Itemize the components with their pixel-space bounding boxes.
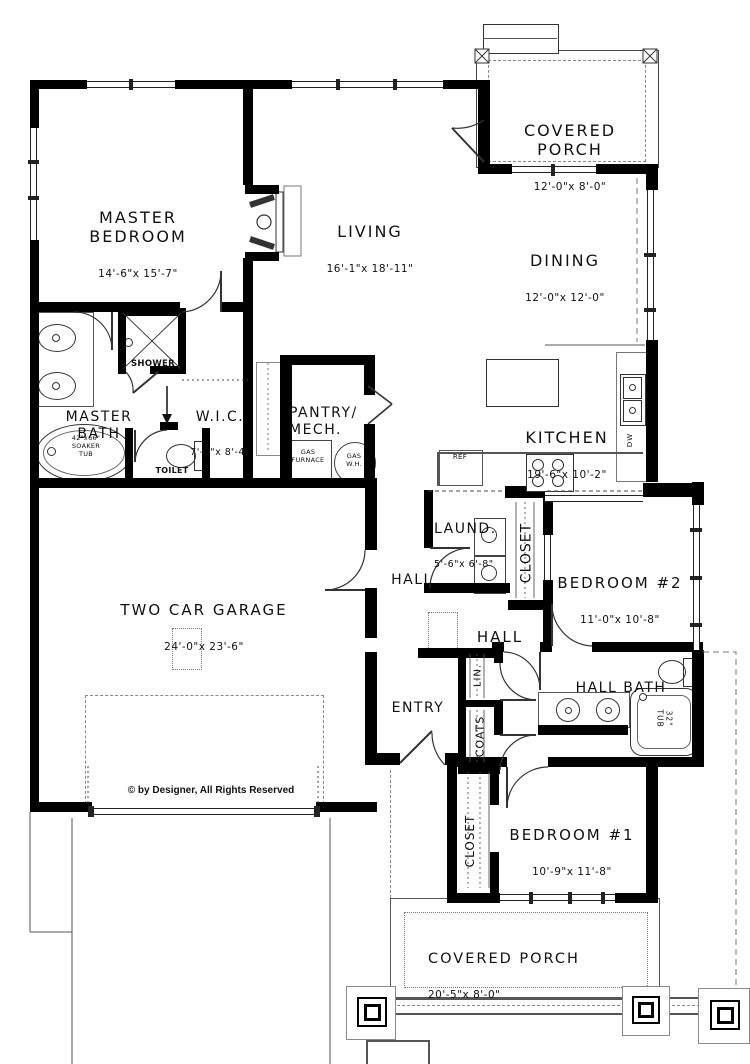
window-mullion — [690, 528, 702, 532]
closet-label-bedroom1: CLOSET — [463, 801, 477, 881]
wall — [418, 648, 460, 658]
ref-label: REF — [441, 453, 479, 461]
porch-column — [364, 1004, 381, 1021]
wall — [646, 340, 658, 482]
porch-step-line — [483, 38, 557, 39]
window — [647, 190, 654, 340]
room-dims: 10'-9"x 11'-8" — [502, 866, 642, 878]
walkway — [366, 1040, 368, 1064]
shower-label: SHOWER — [122, 359, 184, 369]
closet-label-laundry: CLOSET — [519, 506, 535, 601]
attic-access — [428, 612, 458, 650]
wall — [160, 422, 178, 430]
room-dims: 16'-1"x 18'-11" — [305, 263, 435, 275]
room-name: HALL BATH — [556, 680, 686, 697]
wall — [175, 80, 292, 89]
window — [292, 81, 443, 88]
wall — [30, 240, 39, 482]
gas-furnace-label: GAS FURNACE — [286, 448, 330, 465]
room-name: HALL — [458, 629, 542, 647]
wall — [548, 757, 702, 767]
wall — [316, 802, 377, 812]
copyright-text: © by Designer, All Rights Reserved — [106, 785, 316, 796]
room-dims: 12'-0"x 8'-0" — [500, 181, 640, 193]
room-name: BEDROOM #2 — [550, 575, 690, 593]
wall — [243, 85, 253, 185]
porch-steps — [483, 24, 559, 54]
room-dims: 12'-0"x 12'-0" — [500, 292, 630, 304]
floor-plan: COVERED PORCH 12'-0"x 8'-0" MASTER BEDRO… — [0, 0, 750, 1064]
wall — [447, 893, 500, 903]
window-mullion — [129, 79, 133, 90]
wall — [30, 80, 39, 128]
window-mullion — [644, 308, 656, 312]
dishwasher-label: DW — [626, 428, 634, 452]
wall — [424, 490, 433, 548]
room-dims: 20'-5"x 8'-0" — [428, 989, 608, 1001]
room-label-bedroom1: BEDROOM #1 10'-9"x 11'-8" — [502, 808, 642, 897]
room-dims: 24'-0"x 23'-6" — [104, 641, 304, 653]
room-label-garage: TWO CAR GARAGE 24'-0"x 23'-6" — [104, 583, 304, 672]
porch-column — [717, 1007, 734, 1024]
window-mullion — [336, 79, 340, 90]
room-name: DINING — [500, 252, 630, 271]
walkway — [428, 1040, 430, 1064]
room-label-pantry-mech: PANTRY/ MECH. — [289, 386, 377, 457]
wall — [447, 767, 457, 893]
room-name: COVERED PORCH — [500, 122, 640, 160]
room-name: LAUND. — [434, 521, 514, 538]
gas-wh-label: GAS W.H. — [334, 452, 374, 469]
room-label-living: LIVING 16'-1"x 18'-11" — [305, 204, 435, 294]
room-name: KITCHEN — [502, 429, 632, 448]
room-label-kitchen: KITCHEN 19'-6"x 10'-2" — [502, 410, 632, 500]
shower-wall — [118, 308, 186, 316]
window-mullion — [393, 79, 397, 90]
room-name: TWO CAR GARAGE — [104, 602, 304, 620]
room-name: LIVING — [305, 223, 435, 242]
wall — [646, 767, 658, 903]
wall — [646, 164, 658, 190]
sink-drain — [629, 384, 636, 391]
room-name: PANTRY/ MECH. — [289, 405, 377, 438]
room-name: MASTER BEDROOM — [68, 209, 208, 247]
room-label-hall-upper: HALL — [376, 553, 448, 608]
room-label-dining: DINING 12'-0"x 12'-0" — [500, 233, 630, 323]
wall — [490, 852, 499, 893]
hall-tub-label: 32" TUB — [655, 705, 672, 733]
sink-drain — [52, 382, 60, 390]
room-label-covered-porch-top: COVERED PORCH 12'-0"x 8'-0" — [500, 103, 640, 212]
sink-drain — [52, 334, 60, 342]
wall — [365, 488, 377, 550]
wall — [478, 87, 490, 164]
room-name: BEDROOM #1 — [502, 827, 642, 845]
garage-door-end — [314, 806, 320, 817]
fireplace — [245, 185, 301, 261]
wall — [490, 767, 499, 805]
room-label-entry: ENTRY — [380, 681, 456, 736]
room-dims: 19'-6"x 10'-2" — [502, 469, 632, 481]
wall — [365, 753, 400, 765]
closet-label-lin: LIN. — [473, 655, 484, 697]
wall — [222, 302, 253, 312]
room-label-bedroom2: BEDROOM #2 11'-0"x 10'-8" — [550, 556, 690, 645]
wall — [365, 652, 377, 753]
wall — [30, 802, 92, 812]
wall — [508, 600, 545, 610]
room-dims: 14'-6"x 15'-7" — [68, 268, 208, 280]
room-name: COVERED PORCH — [428, 951, 608, 968]
room-label-hall-lower: HALL — [458, 610, 542, 666]
room-label-wic: W.I.C. 7'-0"x 8'-4" — [178, 390, 262, 477]
wall — [30, 482, 39, 812]
window-mullion — [28, 196, 39, 200]
window-mullion — [690, 576, 702, 580]
garage-door — [92, 808, 316, 815]
window-mullion — [28, 160, 39, 164]
toilet-label: TOILET — [141, 466, 203, 475]
kitchen-island — [486, 359, 559, 407]
window-mullion — [690, 623, 702, 627]
wall — [692, 482, 704, 505]
room-label-master-bedroom: MASTER BEDROOM 14'-6"x 15'-7" — [68, 190, 208, 299]
room-label-covered-porch-bottom: COVERED PORCH 20'-5"x 8'-0" — [428, 932, 608, 1020]
roof-dash — [390, 770, 391, 898]
room-name: ENTRY — [380, 700, 456, 717]
room-name: HALL — [376, 572, 448, 589]
room-dims: 11'-0"x 10'-8" — [550, 614, 690, 626]
window-mullion — [644, 253, 656, 257]
closet-label-coats: COATS — [474, 704, 487, 770]
tub-faucet — [47, 447, 56, 456]
room-name: W.I.C. — [178, 409, 262, 426]
garage-door-end — [88, 806, 94, 817]
walkway — [366, 1040, 430, 1042]
porch-column — [638, 1002, 654, 1018]
wall — [458, 648, 466, 773]
wall — [692, 650, 704, 767]
wic-entry-arrow — [162, 386, 172, 424]
soaker-tub-label: 42"x66" SOAKER TUB — [58, 434, 114, 458]
window — [30, 128, 37, 240]
wall — [538, 725, 628, 735]
wall — [280, 355, 375, 365]
room-dims: 7'-0"x 8'-4" — [178, 447, 262, 458]
